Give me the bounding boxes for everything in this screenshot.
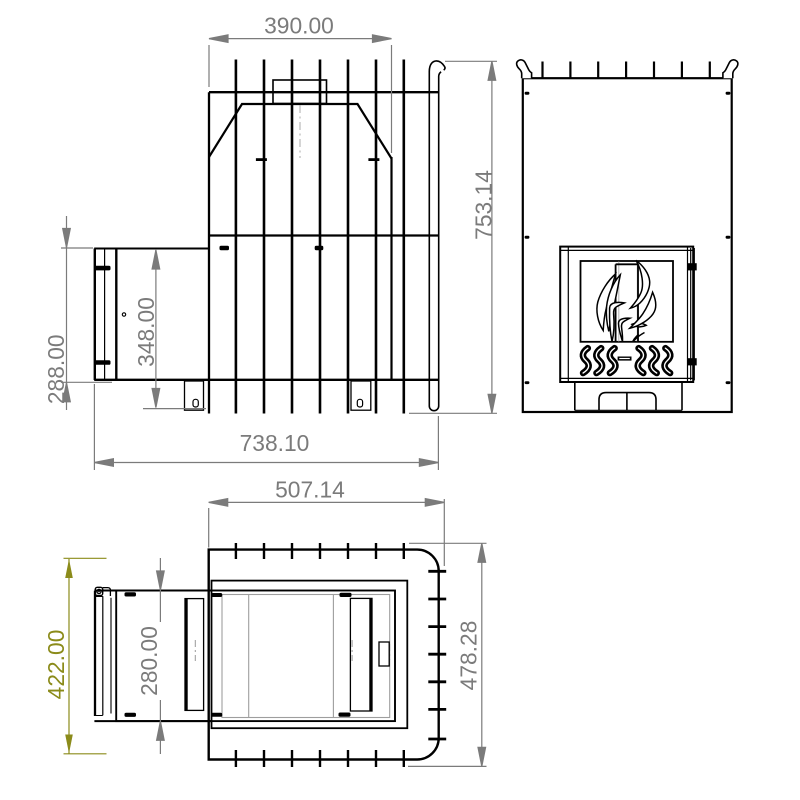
svg-text:280.00: 280.00 (136, 626, 162, 696)
svg-text:738.10: 738.10 (240, 430, 310, 456)
svg-text:288.00: 288.00 (43, 334, 69, 404)
svg-text:507.14: 507.14 (275, 477, 345, 503)
svg-text:478.28: 478.28 (456, 621, 482, 691)
svg-text:422.00: 422.00 (43, 630, 69, 700)
svg-text:753.14: 753.14 (471, 170, 497, 240)
svg-text:348.00: 348.00 (133, 297, 159, 367)
svg-text:390.00: 390.00 (264, 13, 334, 39)
